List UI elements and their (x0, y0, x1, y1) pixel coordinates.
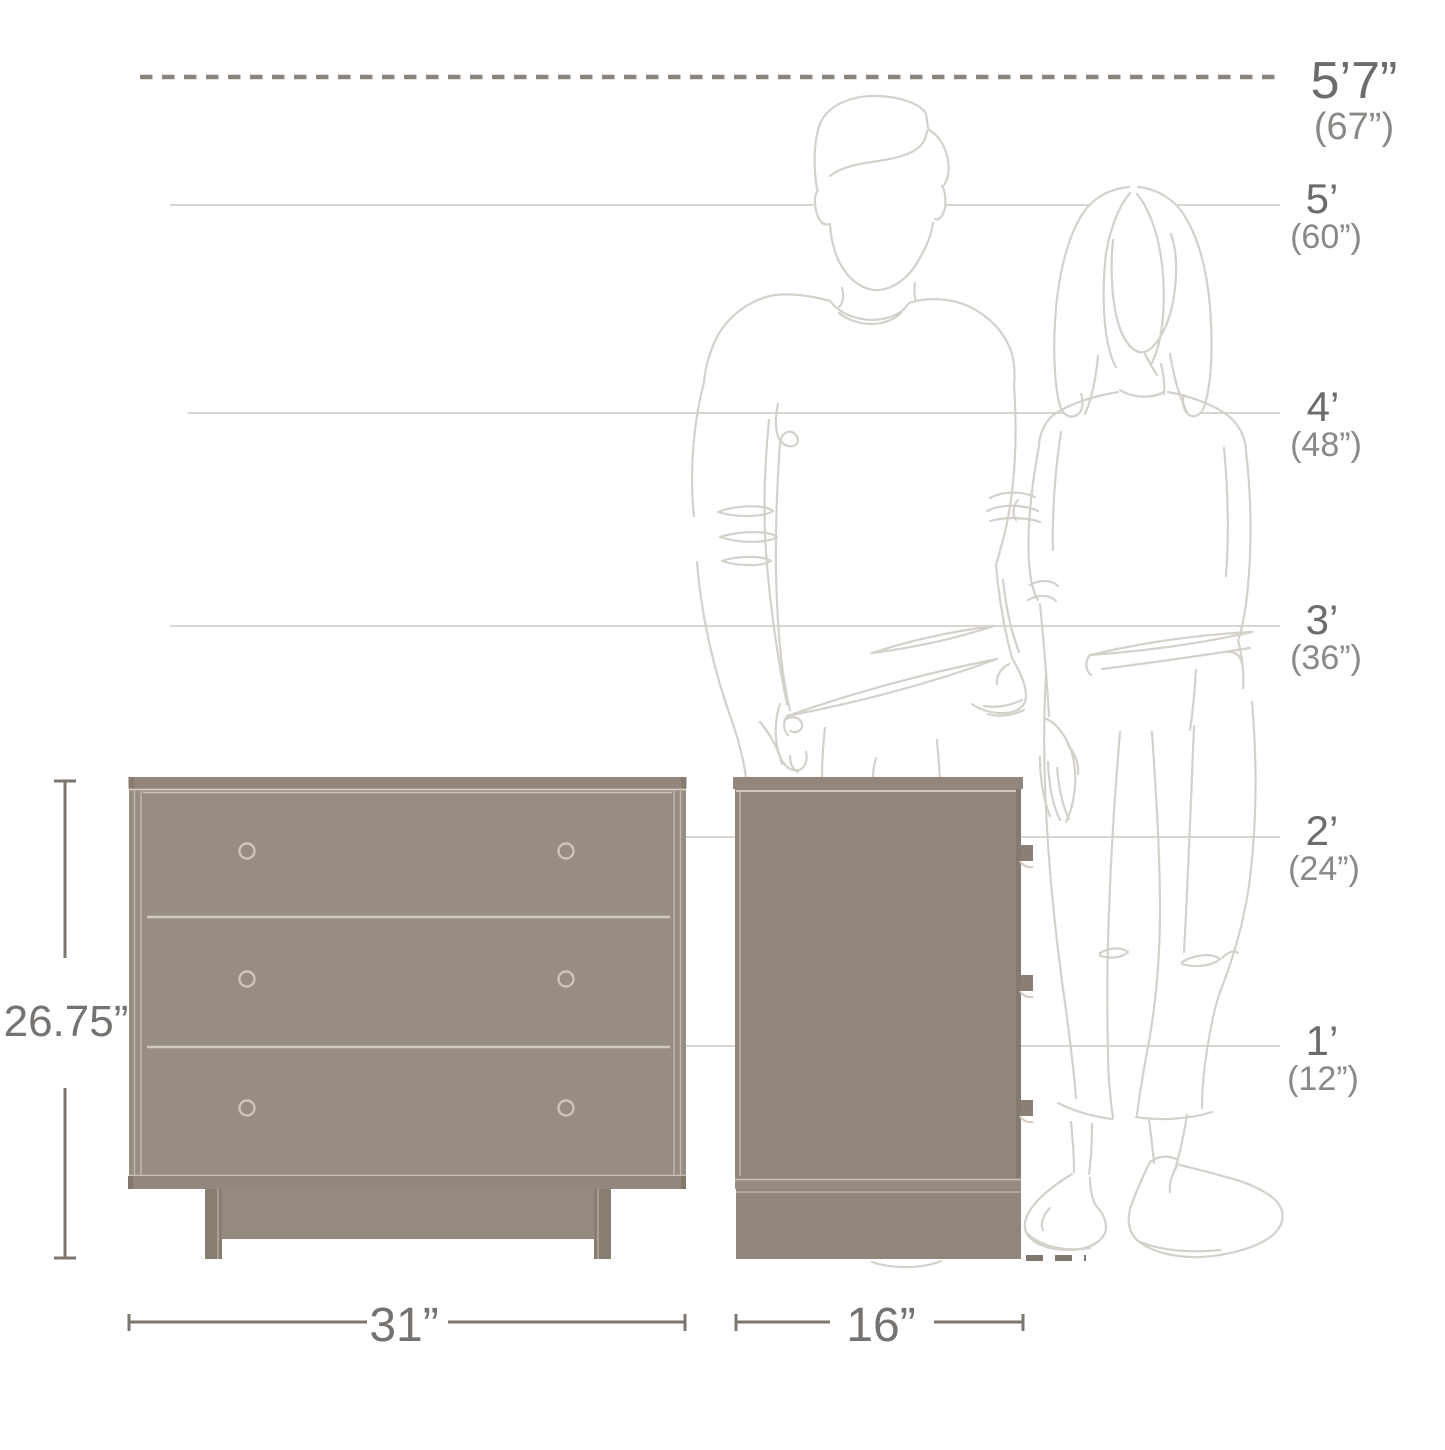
svg-text:4’: 4’ (1307, 383, 1340, 430)
svg-text:16”: 16” (846, 1299, 915, 1352)
svg-text:2’: 2’ (1306, 807, 1339, 854)
svg-text:5’7”: 5’7” (1311, 52, 1398, 110)
svg-text:(60”): (60”) (1290, 218, 1362, 256)
svg-text:(12”): (12”) (1287, 1060, 1359, 1098)
svg-text:(48”): (48”) (1290, 426, 1362, 464)
svg-text:26.75”: 26.75” (4, 997, 129, 1046)
svg-text:31”: 31” (369, 1299, 438, 1352)
svg-text:3’: 3’ (1306, 596, 1339, 643)
svg-text:(36”): (36”) (1290, 639, 1362, 677)
svg-text:1’: 1’ (1306, 1017, 1339, 1064)
svg-text:(67”): (67”) (1314, 106, 1394, 148)
svg-text:5’: 5’ (1306, 175, 1339, 222)
svg-text:(24”): (24”) (1288, 850, 1360, 888)
